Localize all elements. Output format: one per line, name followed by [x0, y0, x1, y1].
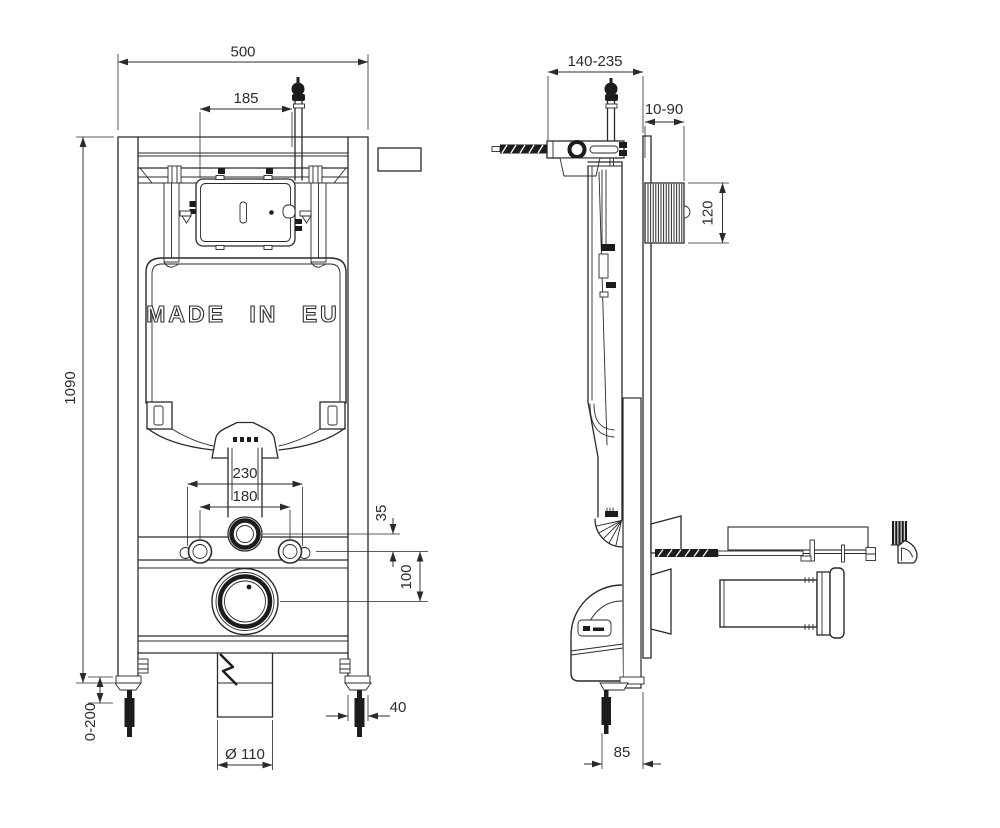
dim-depth-range: 140-235: [548, 53, 643, 140]
pipe-break-symbol: [220, 654, 237, 685]
drain-drop-pipe: [218, 653, 273, 717]
dim-label-230: 230: [232, 465, 257, 482]
dim-fixings-to-outlet: 100: [280, 552, 428, 602]
template-bar: [728, 527, 868, 550]
flush-pipe-section: [228, 517, 262, 551]
tank-embossed-label: MADE IN EU: [146, 301, 339, 327]
top-bracket: [492, 78, 627, 176]
wall-bracket: [378, 148, 421, 171]
mounting-hardware: [655, 527, 876, 562]
dim-foot-to-wall: 85: [584, 692, 661, 769]
technical-drawing-page: MADE IN EU: [0, 0, 1000, 828]
fill-valve-pipe: [292, 77, 306, 180]
installation-frame-drawing: MADE IN EU: [0, 0, 1000, 828]
seal-clip-parts: [891, 521, 917, 563]
box-knob: [684, 206, 690, 218]
drain-elbow: [571, 585, 623, 681]
dim-label-1090: 1090: [62, 371, 79, 404]
dim-box-height: 120: [688, 183, 729, 243]
drain-stub: [651, 569, 671, 634]
adjustable-feet: [115, 676, 371, 737]
bottom-rail: [138, 636, 350, 673]
dim-label-185: 185: [233, 90, 258, 107]
tank-side: [588, 162, 622, 520]
cistern-tank: MADE IN EU: [146, 258, 346, 450]
outlet-section: [212, 569, 278, 635]
flush-stub: [651, 516, 681, 553]
dim-label-10-90: 10-90: [645, 101, 683, 118]
dim-label-0-200: 0-200: [82, 703, 99, 741]
dim-label-100: 100: [398, 564, 415, 589]
side-view: 140-235 10-90 120 85: [492, 53, 917, 769]
bracket-eye: [570, 142, 585, 157]
wc-connector: [720, 568, 844, 638]
box-dot: [269, 210, 274, 215]
dim-label-dia-110: Ø 110: [225, 746, 265, 763]
dim-label-140-235: 140-235: [567, 53, 622, 70]
dim-label-120: 120: [700, 200, 717, 225]
dim-label-35: 35: [373, 505, 390, 522]
dim-front-width: 500: [118, 44, 368, 131]
dim-leg-adjust: 0-200: [82, 677, 113, 741]
brand-mark: [605, 511, 618, 517]
protection-box: [645, 183, 690, 243]
flush-bend: [595, 519, 623, 547]
frame-post-side: [623, 398, 641, 688]
dim-label-180: 180: [232, 488, 257, 505]
dim-valve-offset: 185: [200, 90, 292, 178]
dim-front-height: 1090: [62, 137, 114, 683]
dim-label-500: 500: [230, 44, 255, 61]
dim-label-40: 40: [390, 699, 407, 716]
box-slot: [240, 202, 247, 223]
front-view: MADE IN EU: [62, 44, 428, 771]
access-box: [180, 176, 311, 250]
dim-post-width: 40: [326, 695, 406, 721]
dim-outlet-diameter: Ø 110: [218, 720, 273, 770]
dim-label-85: 85: [614, 744, 631, 761]
